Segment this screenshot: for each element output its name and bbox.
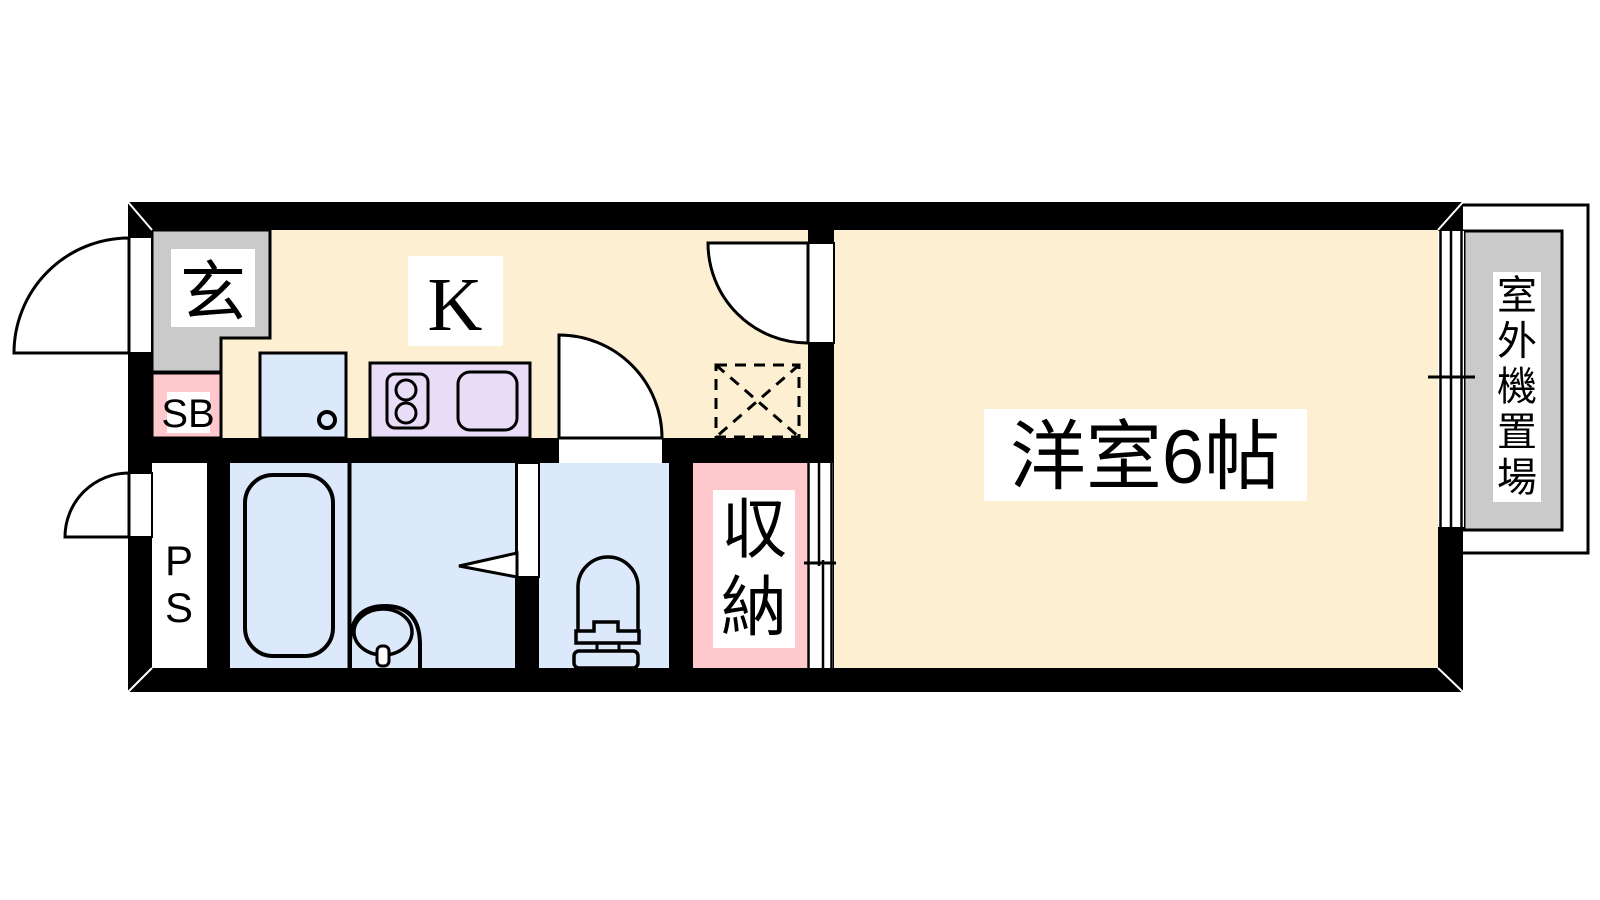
storage-sliding-door [804,463,836,668]
storage-closet: 収納 [693,463,807,668]
washbasin-faucet-icon [377,646,389,666]
toilet-floor [539,463,669,668]
ps-door-panel [129,473,152,537]
kitchen-label: K [428,263,483,347]
floor-plan: 室外機置場 収納 [0,0,1600,900]
floor-plan-page: 室外機置場 収納 [0,0,1600,900]
pipe-space-label: PS [165,537,193,631]
western-room-label: 洋室6帖 [1010,415,1280,500]
entrance-door [14,237,152,353]
toilet-room [539,463,669,668]
entrance-label: 玄 [180,255,246,329]
washroom-door-band [517,463,539,577]
toilet-doorway [559,438,662,463]
ps-door-swing [65,473,129,537]
shoe-box-label: SB [161,392,214,436]
outdoor-unit-area: 室外機置場 [1450,205,1588,553]
entrance-door-panel [129,237,152,353]
outdoor-unit-label: 室外機置場 [1497,274,1537,500]
room-doorway [808,243,834,343]
pipe-space-door [65,473,152,537]
entrance-door-swing [14,238,129,353]
